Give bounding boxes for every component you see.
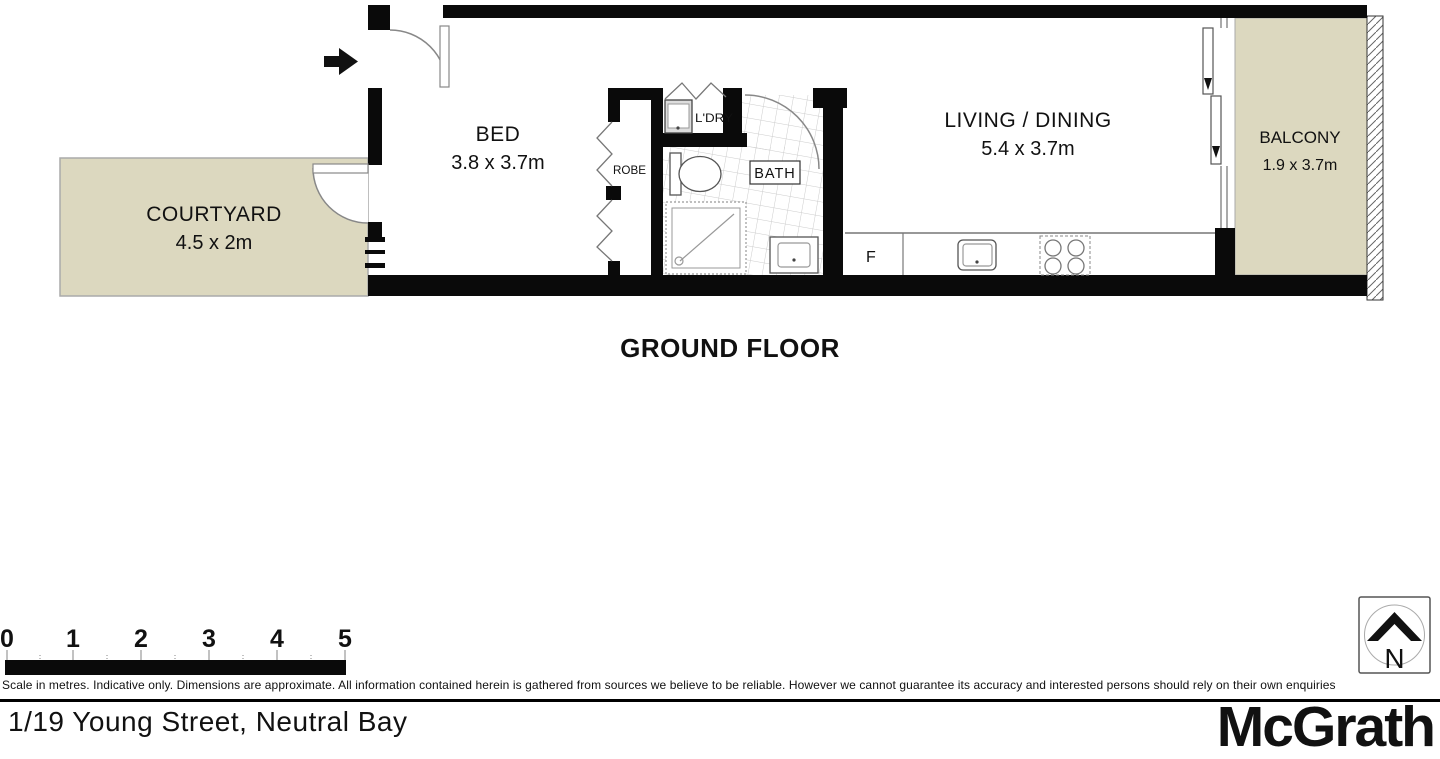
shower	[666, 202, 746, 274]
entrance-arrow-icon	[324, 48, 358, 75]
living-dining-label: LIVING / DINING	[944, 109, 1111, 132]
mcgrath-logo: McGrath	[1217, 699, 1434, 756]
north-indicator: N	[1359, 597, 1430, 674]
floorplan-page: COURTYARD 4.5 x 2m BALCONY 1.9 x 3.7m	[0, 0, 1440, 756]
scale-tick-2: 2	[134, 625, 148, 653]
scale-tick-5: 5	[338, 625, 352, 653]
fridge-label: F	[866, 249, 876, 266]
living-dining-dims: 5.4 x 3.7m	[981, 138, 1074, 160]
wall-robe-west-lower	[608, 261, 620, 277]
balcony-label: BALCONY	[1259, 128, 1340, 147]
laundry-sink	[665, 100, 692, 133]
level-title: GROUND FLOOR	[620, 333, 840, 363]
scale-bar-rule	[5, 660, 346, 675]
balcony-railing-hatch	[1367, 16, 1383, 300]
wall-balcony-stub	[1215, 228, 1235, 288]
scale-tick-1: 1	[66, 625, 80, 653]
balcony-sliding-door	[1203, 18, 1227, 228]
wall-entry-stub	[368, 5, 390, 30]
cooktop	[1040, 236, 1090, 275]
bath-vanity	[770, 237, 818, 273]
balcony-dims: 1.9 x 3.7m	[1263, 157, 1338, 174]
bath-label: BATH	[754, 166, 796, 182]
bed-label: BED	[476, 123, 521, 146]
bath-label-box: BATH	[750, 161, 800, 184]
laundry-bifold-door	[665, 83, 726, 99]
scale-tick-3: 3	[202, 625, 216, 653]
scale-tick-4: 4	[270, 625, 284, 653]
wall-bath-east	[823, 100, 843, 275]
courtyard-dims: 4.5 x 2m	[176, 232, 253, 254]
robe-label: ROBE	[613, 163, 646, 177]
floor-plan-drawing: COURTYARD 4.5 x 2m BALCONY 1.9 x 3.7m	[0, 0, 1440, 700]
wall-robe-west-mid	[606, 186, 621, 200]
wall-courtyard-stub	[368, 222, 382, 238]
courtyard-label: COURTYARD	[146, 203, 282, 226]
wall-top	[443, 5, 1367, 18]
kitchen-bench: F	[845, 233, 1215, 275]
entrance-door	[390, 26, 449, 87]
laundry-label: L'DRY	[695, 111, 733, 125]
property-address: 1/19 Young Street, Neutral Bay	[8, 706, 408, 738]
bed-dims: 3.8 x 3.7m	[451, 152, 544, 174]
wall-laundry-south	[663, 133, 747, 147]
north-letter: N	[1384, 643, 1404, 674]
wall-bed-west	[368, 88, 382, 165]
wall-robe-bath	[651, 88, 663, 275]
bed-window	[365, 237, 385, 268]
scale-bar: 0 1 2 3 4 5	[0, 625, 352, 675]
scale-tick-0: 0	[0, 625, 14, 653]
kitchen-sink	[958, 240, 996, 270]
scale-tick-lines	[7, 650, 345, 660]
balcony-area: BALCONY 1.9 x 3.7m	[1235, 16, 1383, 300]
